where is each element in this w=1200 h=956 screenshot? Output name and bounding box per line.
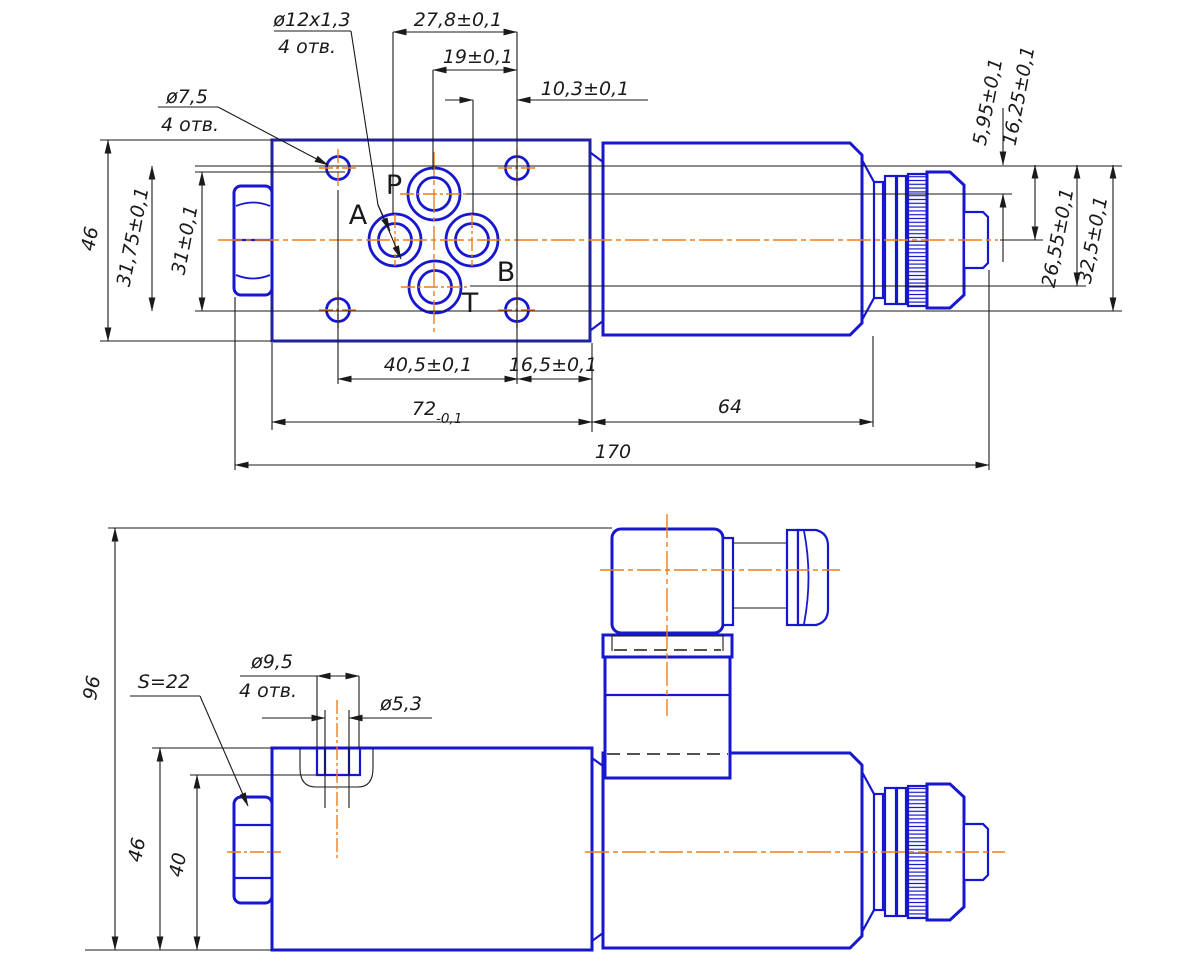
dim-27-8: 27,8±0,1 [414, 9, 502, 31]
port-label-t: T [461, 288, 479, 319]
dim-40-5: 40,5±0,1 [384, 354, 472, 376]
dim-40: 40 [165, 851, 191, 879]
dim-16-5: 16,5±0,1 [509, 354, 597, 376]
dim-64: 64 [718, 396, 742, 418]
port-label-b: B [497, 257, 516, 288]
dim-46-top: 46 [77, 225, 103, 253]
cbore-qty-label: 4 отв. [239, 680, 297, 702]
cable-gland-nut [798, 530, 828, 625]
hole-qty-label: 4 отв. [161, 114, 219, 136]
port-label-p: P [386, 170, 402, 201]
dim-96: 96 [79, 674, 105, 702]
dim-72: 72 [412, 398, 436, 420]
cbore-spec-label: ø9,5 [250, 651, 293, 673]
dim-46-side: 46 [124, 836, 150, 864]
dim-72-tolerance: -0,1 [436, 411, 462, 427]
hole-spec-label: ø7,5 [165, 86, 208, 108]
dim-170: 170 [595, 441, 631, 463]
hole-5-3-label: ø5,3 [379, 693, 422, 715]
hex-nut-side [234, 797, 272, 903]
thread-spec-label: ø12x1,3 [272, 9, 350, 31]
solenoid-tube-side [603, 753, 862, 948]
cable-gland-neck [723, 538, 733, 625]
valve-body-side [272, 748, 592, 950]
solenoid-tube-outline [603, 143, 862, 335]
wrench-size-label: S=22 [138, 671, 190, 693]
drawing-page: ø12x1,3 4 отв. ø7,5 4 отв. 27,8±0,1 19±0… [0, 0, 1200, 956]
thread-qty-label: 4 отв. [278, 36, 336, 58]
valve-technical-drawing: ø12x1,3 4 отв. ø7,5 4 отв. 27,8±0,1 19±0… [0, 0, 1200, 956]
dim-10-3: 10,3±0,1 [541, 78, 629, 100]
dim-19: 19±0,1 [443, 46, 513, 68]
port-label-a: A [349, 200, 368, 231]
